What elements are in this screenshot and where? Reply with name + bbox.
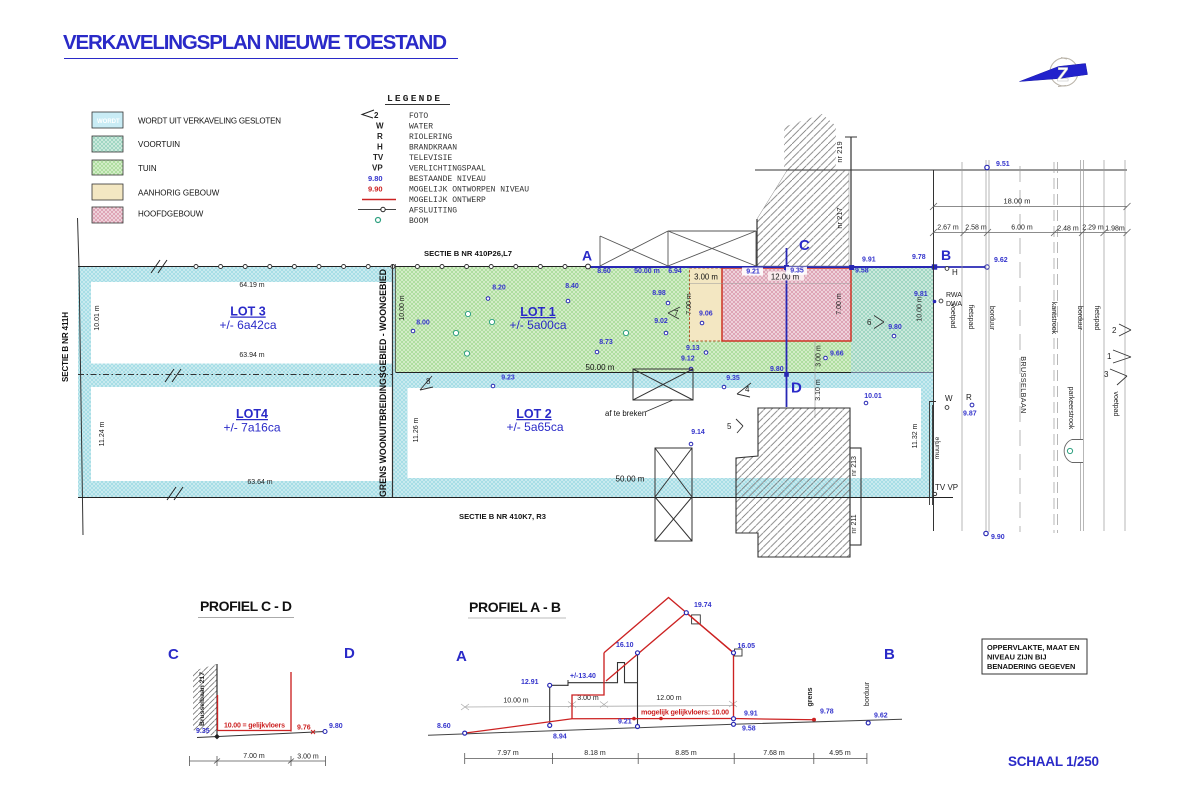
svg-text:7.00 m: 7.00 m [686, 293, 693, 315]
svg-text:FOTO: FOTO [409, 112, 428, 121]
svg-text:9.14: 9.14 [691, 429, 705, 436]
svg-text:RWA: RWA [946, 292, 962, 299]
svg-text:9.80: 9.80 [329, 723, 343, 730]
svg-text:GRENS WOONUITBREIDINGSGEBIED -: GRENS WOONUITBREIDINGSGEBIED - WOONGEBIE… [378, 269, 388, 497]
svg-text:nr 211: nr 211 [851, 514, 858, 533]
svg-text:BENADERING GEGEVEN: BENADERING GEGEVEN [987, 662, 1075, 671]
svg-text:8.73: 8.73 [599, 339, 613, 346]
svg-text:H: H [952, 268, 958, 277]
svg-text:9.80: 9.80 [368, 174, 383, 183]
svg-text:LEGENDE: LEGENDE [387, 93, 442, 104]
svg-text:BRUSSELBAAN: BRUSSELBAAN [1019, 356, 1028, 414]
svg-text:8.60: 8.60 [437, 723, 451, 730]
svg-text:W: W [945, 394, 953, 403]
svg-text:6.00 m: 6.00 m [1011, 225, 1033, 232]
svg-text:7.00 m: 7.00 m [243, 753, 265, 760]
svg-text:D: D [791, 380, 802, 397]
svg-text:muurtje: muurtje [934, 436, 941, 459]
svg-text:mogelijk gelijkvloers: 10.00: mogelijk gelijkvloers: 10.00 [641, 708, 729, 717]
svg-text:1: 1 [1107, 352, 1112, 361]
svg-text:+/- 5a00ca: +/- 5a00ca [509, 318, 566, 332]
svg-text:LOT 1: LOT 1 [520, 305, 555, 319]
svg-text:11.24 m: 11.24 m [99, 421, 106, 446]
svg-text:C: C [168, 646, 179, 663]
svg-text:4: 4 [745, 385, 750, 394]
svg-text:3.00 m: 3.00 m [297, 754, 319, 761]
svg-text:TV: TV [373, 153, 384, 162]
svg-text:RIOLERING: RIOLERING [409, 133, 452, 142]
svg-text:16.05: 16.05 [738, 643, 756, 650]
svg-text:2.58 m: 2.58 m [965, 225, 987, 232]
svg-text:9.12: 9.12 [681, 356, 695, 363]
svg-text:LOT 2: LOT 2 [516, 407, 551, 421]
svg-text:B: B [941, 247, 951, 263]
svg-text:grens: grens [807, 687, 814, 706]
svg-text:5: 5 [727, 422, 732, 431]
svg-text:11.26 m: 11.26 m [413, 417, 420, 442]
svg-text:WATER: WATER [409, 123, 433, 132]
svg-text:9.78: 9.78 [820, 709, 834, 716]
svg-text:LOT 3: LOT 3 [230, 305, 265, 319]
svg-text:+/- 5a65ca: +/- 5a65ca [506, 420, 563, 434]
svg-text:9.02: 9.02 [654, 318, 668, 325]
svg-text:+/-13.40: +/-13.40 [570, 673, 596, 680]
svg-text:9.21: 9.21 [746, 269, 760, 276]
svg-text:borduur: borduur [988, 306, 995, 331]
svg-text:2: 2 [1112, 326, 1117, 335]
svg-text:8.85 m: 8.85 m [675, 750, 697, 757]
svg-text:9.91: 9.91 [744, 711, 758, 718]
svg-text:8.20: 8.20 [492, 285, 506, 292]
svg-text:AANHORIG GEBOUW: AANHORIG GEBOUW [138, 189, 220, 198]
svg-text:3.00 m: 3.00 m [694, 273, 718, 282]
svg-text:9.06: 9.06 [699, 311, 713, 318]
svg-text:9.21: 9.21 [618, 719, 632, 726]
svg-text:NIVEAU ZIJN BIJ: NIVEAU ZIJN BIJ [987, 653, 1047, 662]
svg-text:TELEVISIE: TELEVISIE [409, 154, 452, 163]
svg-text:11.32 m: 11.32 m [912, 423, 919, 448]
svg-text:R: R [377, 132, 383, 141]
svg-text:PROFIEL C - D: PROFIEL C - D [200, 598, 292, 614]
svg-text:9.58: 9.58 [855, 268, 869, 275]
svg-text:9.62: 9.62 [994, 257, 1008, 264]
svg-text:af te breken: af te breken [605, 409, 646, 418]
svg-text:9.35: 9.35 [726, 375, 740, 382]
svg-text:8.94: 8.94 [553, 734, 567, 741]
svg-text:fietspad: fietspad [967, 305, 974, 330]
svg-text:2.29 m: 2.29 m [1082, 225, 1104, 232]
svg-text:10.00 m: 10.00 m [503, 698, 528, 705]
svg-text:borduur: borduur [1076, 306, 1083, 331]
svg-text:9.80: 9.80 [888, 324, 902, 331]
svg-text:TUIN: TUIN [138, 164, 157, 173]
svg-text:6: 6 [867, 318, 872, 327]
svg-text:AFSLUITING: AFSLUITING [409, 207, 457, 216]
svg-text:9.35: 9.35 [196, 728, 210, 735]
svg-text:9.35: 9.35 [790, 268, 804, 275]
svg-text:+/- 7a16ca: +/- 7a16ca [223, 421, 280, 435]
svg-text:HOOFDGEBOUW: HOOFDGEBOUW [138, 210, 204, 219]
svg-text:WORDT: WORDT [97, 119, 120, 125]
svg-text:9.62: 9.62 [874, 713, 888, 720]
svg-text:SECTIE B NR 410P26,L7: SECTIE B NR 410P26,L7 [424, 249, 512, 258]
svg-text:7.00 m: 7.00 m [836, 293, 843, 315]
svg-text:SECTIE B NR 411H: SECTIE B NR 411H [61, 312, 70, 382]
svg-text:VOORTUIN: VOORTUIN [138, 140, 180, 149]
svg-text:7: 7 [674, 309, 679, 318]
svg-text:BRANDKRAAN: BRANDKRAAN [409, 144, 457, 153]
svg-text:8.40: 8.40 [565, 283, 579, 290]
svg-text:nr 213: nr 213 [851, 456, 858, 476]
svg-text:9.87: 9.87 [963, 411, 977, 418]
svg-text:TV VP: TV VP [935, 483, 958, 492]
svg-text:9.13: 9.13 [686, 345, 700, 352]
svg-text:63.94 m: 63.94 m [239, 352, 264, 359]
svg-text:MOGELIJK ONTWORPEN NIVEAU: MOGELIJK ONTWORPEN NIVEAU [409, 186, 529, 195]
svg-text:9.90: 9.90 [368, 185, 383, 194]
svg-text:nr 217: nr 217 [835, 207, 844, 228]
svg-text:9.23: 9.23 [501, 375, 515, 382]
svg-text:OPPERVLAKTE, MAAT EN: OPPERVLAKTE, MAAT EN [987, 643, 1080, 652]
svg-text:8: 8 [426, 377, 431, 386]
svg-text:9.80: 9.80 [770, 366, 784, 373]
svg-text:2: 2 [374, 111, 379, 120]
svg-text:A: A [582, 248, 592, 264]
svg-text:D: D [344, 645, 355, 662]
svg-text:LOT4: LOT4 [236, 407, 268, 421]
svg-text:64.19 m: 64.19 m [239, 282, 264, 289]
svg-text:10.01 m: 10.01 m [94, 305, 101, 330]
svg-text:19.74: 19.74 [694, 602, 712, 609]
svg-text:SCHAAL 1/250: SCHAAL 1/250 [1008, 754, 1099, 769]
svg-text:R: R [966, 393, 972, 402]
svg-text:8.18 m: 8.18 m [584, 750, 606, 757]
svg-text:3.00 m: 3.00 m [577, 695, 599, 702]
svg-text:9.51: 9.51 [996, 161, 1010, 168]
svg-text:Brusselbaan 217: Brusselbaan 217 [199, 672, 206, 726]
svg-text:1.98m: 1.98m [1105, 226, 1125, 233]
svg-text:50.00 m: 50.00 m [586, 363, 615, 372]
svg-text:VERKAVELINGSPLAN NIEUWE TOESTA: VERKAVELINGSPLAN NIEUWE TOESTAND [63, 31, 447, 54]
svg-text:A: A [456, 648, 467, 665]
svg-text:4.95 m: 4.95 m [829, 750, 851, 757]
svg-text:Z: Z [1057, 65, 1069, 86]
svg-text:8.60: 8.60 [597, 268, 611, 275]
svg-text:SECTIE B NR 410K7, R3: SECTIE B NR 410K7, R3 [459, 512, 546, 521]
svg-text:PROFIEL A - B: PROFIEL A - B [469, 599, 561, 615]
svg-text:borduur: borduur [864, 681, 871, 706]
svg-text:W: W [376, 122, 384, 131]
svg-text:16.10: 16.10 [616, 642, 634, 649]
svg-text:9.81: 9.81 [914, 291, 928, 298]
svg-text:10.01: 10.01 [864, 393, 882, 400]
svg-text:B: B [884, 646, 895, 663]
svg-text:3.10 m: 3.10 m [815, 379, 822, 401]
svg-text:fietspad: fietspad [1093, 306, 1100, 331]
svg-text:9.58: 9.58 [742, 726, 756, 733]
svg-text:H: H [377, 143, 383, 152]
svg-text:C: C [799, 237, 810, 254]
svg-text:9.66: 9.66 [830, 351, 844, 358]
svg-text:nr 219: nr 219 [835, 141, 844, 162]
svg-text:8.98: 8.98 [652, 290, 666, 297]
svg-text:MOGELIJK ONTWERP: MOGELIJK ONTWERP [409, 196, 486, 205]
svg-text:12.00 m: 12.00 m [656, 695, 681, 702]
svg-text:50.00 m: 50.00 m [616, 475, 645, 484]
svg-text:9.78: 9.78 [912, 254, 926, 261]
svg-text:VP: VP [372, 164, 383, 173]
svg-text:63.64 m: 63.64 m [247, 479, 272, 486]
svg-text:voetpad: voetpad [1112, 392, 1119, 417]
svg-text:10.00 m: 10.00 m [399, 295, 406, 320]
svg-text:2.67 m: 2.67 m [937, 225, 959, 232]
svg-text:7.97 m: 7.97 m [497, 750, 519, 757]
svg-text:VERLICHTINGSPAAL: VERLICHTINGSPAAL [409, 165, 486, 174]
svg-text:12.91: 12.91 [521, 679, 539, 686]
svg-text:kantstrook: kantstrook [1050, 302, 1057, 335]
svg-text:10.00 = gelijkvloers: 10.00 = gelijkvloers [224, 723, 285, 730]
svg-text:3: 3 [1104, 370, 1109, 379]
svg-text:8.00: 8.00 [416, 320, 430, 327]
svg-text:2.48 m: 2.48 m [1057, 226, 1079, 233]
svg-text:3.00 m: 3.00 m [816, 345, 823, 367]
svg-text:BOOM: BOOM [409, 217, 428, 226]
svg-text:WORDT UIT VERKAVELING GESLOTEN: WORDT UIT VERKAVELING GESLOTEN [138, 117, 281, 126]
svg-text:+/- 6a42ca: +/- 6a42ca [219, 318, 276, 332]
svg-text:BESTAANDE NIVEAU: BESTAANDE NIVEAU [409, 175, 486, 184]
svg-text:10.00 m: 10.00 m [917, 296, 924, 321]
svg-text:7.68 m: 7.68 m [763, 750, 785, 757]
svg-text:9.90: 9.90 [991, 534, 1005, 541]
svg-text:18.00 m: 18.00 m [1003, 197, 1030, 206]
svg-text:6.94: 6.94 [668, 268, 682, 275]
svg-text:50.00 m: 50.00 m [634, 268, 660, 275]
svg-text:parkeerstrook: parkeerstrook [1067, 387, 1074, 430]
svg-text:9.76: 9.76 [297, 725, 311, 732]
svg-text:DWA: DWA [946, 301, 962, 308]
svg-text:9.91: 9.91 [862, 257, 876, 264]
